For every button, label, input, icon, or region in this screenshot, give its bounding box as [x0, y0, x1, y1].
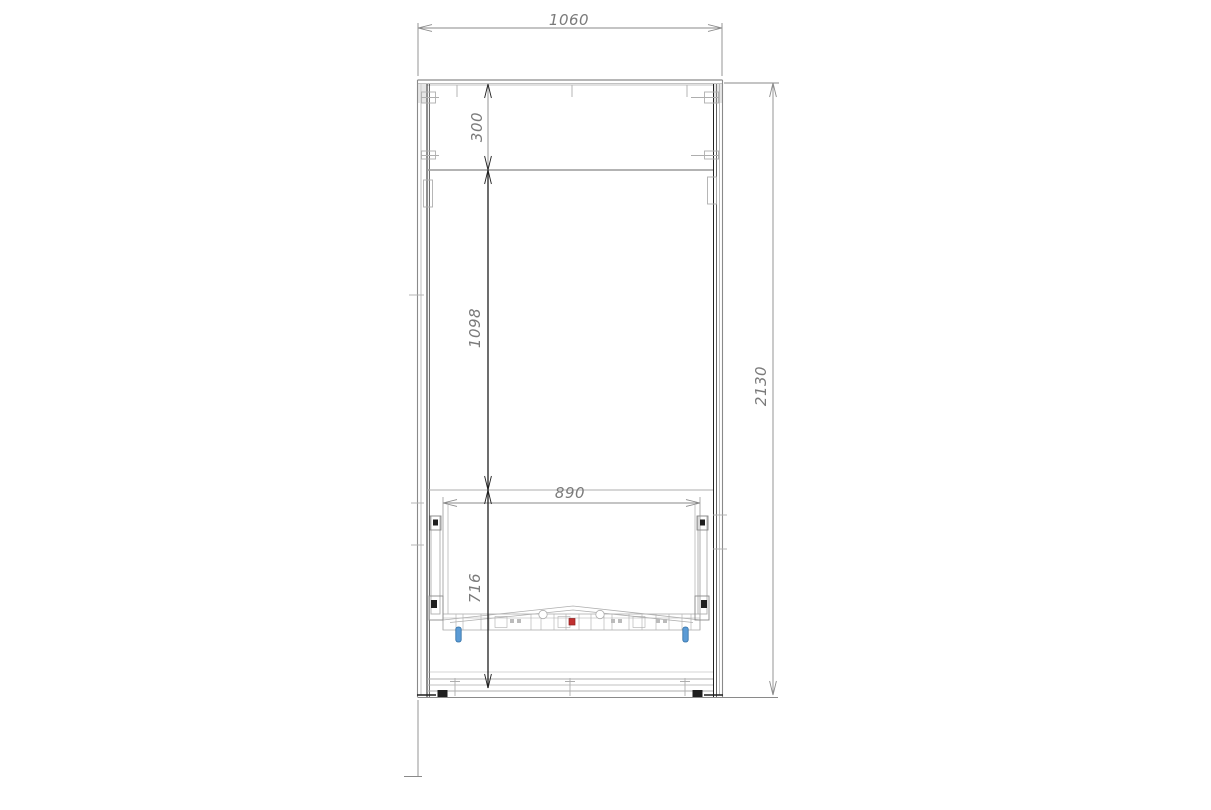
right-corner-hatch: [715, 84, 721, 103]
top-panel: [418, 80, 723, 85]
top-edge-joint-ticks: [457, 85, 687, 97]
rail-roller-right: [596, 610, 604, 618]
dim-label-middle-section: 1098: [466, 308, 484, 348]
dim-label-top-section: 300: [468, 112, 486, 142]
left-panel-fittings: [409, 92, 439, 545]
bed-frame: [443, 497, 700, 642]
cabinet-drawing: [0, 0, 1211, 810]
dim-vertical-chain: [485, 84, 492, 688]
dim-label-overall-width: 1060: [549, 11, 589, 29]
left-pin-marker: [456, 627, 461, 642]
cabinet-structure: [404, 80, 778, 777]
bottom-panel: [417, 672, 723, 697]
dim-overall-width: [418, 23, 722, 76]
right-lift-bracket: [695, 516, 709, 620]
right-panel-fittings: [691, 92, 727, 549]
dim-label-overall-height: 2130: [752, 366, 770, 406]
technical-drawing-canvas: 1060 2130 300 1098 890 716: [0, 0, 1211, 810]
left-corner-hatch: [419, 84, 425, 103]
dim-label-lower-section: 716: [466, 573, 484, 603]
rail-screw-pairs: [510, 619, 667, 623]
left-lift-bracket: [429, 516, 443, 620]
rail-roller-left: [539, 610, 547, 618]
center-lock-marker: [569, 619, 575, 626]
dim-label-inner-width: 890: [555, 484, 585, 502]
right-pin-marker: [683, 627, 688, 642]
datum-centerline: [404, 700, 422, 777]
